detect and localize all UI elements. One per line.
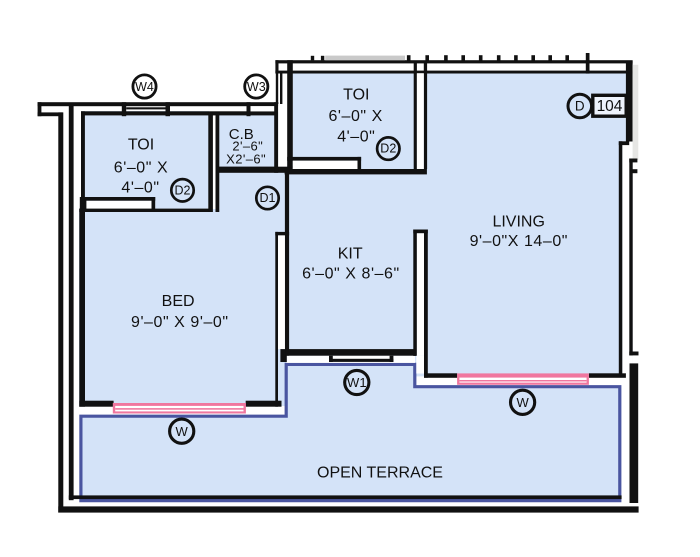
svg-text:D2: D2 <box>380 142 396 156</box>
svg-text:LIVING: LIVING <box>492 214 544 231</box>
svg-text:W4: W4 <box>135 80 154 94</box>
svg-text:104: 104 <box>597 98 623 115</box>
svg-text:D2: D2 <box>175 183 191 197</box>
svg-text:6'–0" X: 6'–0" X <box>114 159 168 176</box>
svg-text:X2'–6": X2'–6" <box>226 152 266 167</box>
svg-text:BED: BED <box>162 293 195 310</box>
svg-text:OPEN TERRACE: OPEN TERRACE <box>317 465 443 482</box>
svg-text:6'–0" X 8'–6": 6'–0" X 8'–6" <box>302 266 400 283</box>
svg-text:4'–0": 4'–0" <box>121 179 159 196</box>
svg-text:W: W <box>516 395 529 410</box>
svg-text:D: D <box>575 99 585 114</box>
svg-text:KIT: KIT <box>338 245 363 262</box>
svg-text:9'–0"X 14–0": 9'–0"X 14–0" <box>470 233 568 250</box>
svg-text:TOI: TOI <box>128 136 154 153</box>
svg-text:TOI: TOI <box>343 87 369 104</box>
svg-text:W: W <box>176 424 189 439</box>
svg-text:9'–0" X 9'–0": 9'–0" X 9'–0" <box>131 314 229 331</box>
svg-text:6'–0" X: 6'–0" X <box>328 108 382 125</box>
svg-text:W3: W3 <box>247 80 266 94</box>
svg-text:4'–0": 4'–0" <box>337 129 375 146</box>
svg-text:D1: D1 <box>260 191 276 205</box>
svg-text:W1: W1 <box>347 375 367 390</box>
